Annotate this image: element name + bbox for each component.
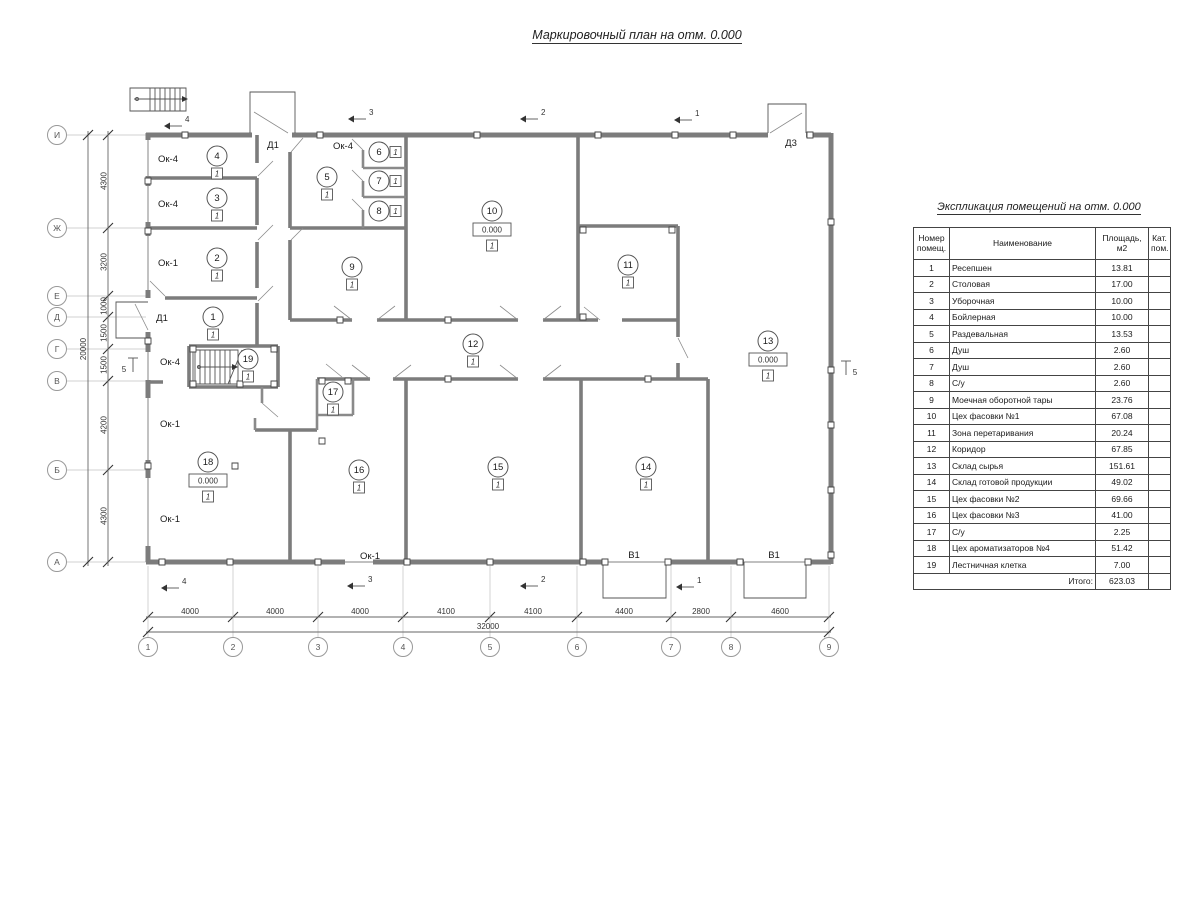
svg-text:9: 9: [827, 642, 832, 652]
svg-text:4: 4: [401, 642, 406, 652]
room-label-8: 81: [369, 201, 401, 221]
table-row: 1Ресепшен13.81: [914, 260, 1171, 277]
svg-text:4: 4: [182, 577, 187, 586]
door-label: В1: [768, 550, 780, 561]
dim-left: 3200: [100, 253, 109, 271]
table-row: 9Моечная оборотной тары23.76: [914, 392, 1171, 409]
axis-col-4: 4: [394, 638, 413, 657]
col-header: Наименование: [950, 228, 1096, 260]
svg-text:1: 1: [393, 177, 397, 186]
col-header: Кат. пом.: [1149, 228, 1171, 260]
table-row: 4Бойлерная10.00: [914, 309, 1171, 326]
room-label-11: 111: [618, 255, 638, 288]
svg-text:7: 7: [376, 176, 381, 187]
svg-text:4: 4: [214, 151, 219, 162]
svg-text:Г: Г: [55, 344, 60, 354]
svg-text:1: 1: [496, 481, 500, 490]
room-label-10: 100.0001: [473, 201, 511, 251]
section-mark-4: 4: [164, 115, 190, 130]
dim-left: 1000: [100, 297, 109, 315]
schedule-header: Номер помещ.НаименованиеПлощадь, м2Кат. …: [914, 228, 1171, 260]
svg-text:1: 1: [393, 148, 397, 157]
dim-left: 1500: [100, 356, 109, 374]
room-label-1: 11: [203, 307, 223, 340]
svg-text:1: 1: [766, 372, 770, 381]
dim-left: 4300: [100, 172, 109, 190]
door-label: Д1: [156, 313, 168, 324]
window-label: Ок-1: [160, 419, 180, 430]
internal-stair: [193, 350, 242, 384]
window-label: Ок-4: [333, 141, 353, 152]
axis-row-В: В: [48, 372, 67, 391]
table-row: 7Душ2.60: [914, 359, 1171, 376]
svg-text:1: 1: [644, 481, 648, 490]
dim-left: 4200: [100, 416, 109, 434]
room-label-2: 21: [207, 248, 227, 281]
room-label-5: 51: [317, 167, 337, 200]
section-mark-1: 1: [676, 576, 702, 591]
table-row: 2Столовая17.00: [914, 276, 1171, 293]
room-labels: 112131415161718191100.0001111121130.0001…: [189, 142, 787, 502]
door-label: Д1: [267, 140, 279, 151]
svg-text:3: 3: [369, 108, 374, 117]
svg-text:6: 6: [575, 642, 580, 652]
svg-text:14: 14: [641, 462, 652, 473]
axis-col-1: 1: [139, 638, 158, 657]
table-row: 17С/у2.25: [914, 524, 1171, 541]
svg-text:13: 13: [763, 336, 774, 347]
section-mark-1: 1: [674, 109, 700, 124]
axis-col-7: 7: [662, 638, 681, 657]
table-row: 18Цех ароматизаторов №451.42: [914, 540, 1171, 557]
svg-text:18: 18: [203, 457, 214, 468]
svg-text:И: И: [54, 130, 60, 140]
svg-text:Б: Б: [54, 465, 60, 475]
svg-text:11: 11: [623, 260, 633, 271]
svg-text:Ж: Ж: [53, 223, 61, 233]
plan-title: Маркировочный план на отм. 0.000: [437, 26, 837, 44]
axis-row-Д: Д: [48, 308, 67, 327]
svg-text:1: 1: [357, 484, 361, 493]
svg-text:10: 10: [487, 206, 498, 217]
svg-text:1: 1: [350, 281, 354, 290]
axis-row-Ж: Ж: [48, 219, 67, 238]
room-label-18: 180.0001: [189, 452, 227, 502]
axis-col-9: 9: [820, 638, 839, 657]
svg-text:15: 15: [493, 462, 504, 473]
axis-row-Б: Б: [48, 461, 67, 480]
window-label: Ок-1: [160, 514, 180, 525]
section-mark-3: 3: [348, 108, 374, 123]
window-label: Ок-4: [158, 199, 178, 210]
schedule-body: 1Ресепшен13.812Столовая17.003Уборочная10…: [914, 260, 1171, 590]
col-header: Площадь, м2: [1096, 228, 1149, 260]
schedule-title: Экспликация помещений на отм. 0.000: [908, 197, 1170, 215]
svg-text:5: 5: [853, 368, 858, 377]
total-value: 623.03: [1096, 573, 1149, 590]
table-row: 16Цех фасовки №341.00: [914, 507, 1171, 524]
svg-text:12: 12: [468, 339, 479, 350]
window-label: Ок-4: [160, 357, 180, 368]
svg-text:3: 3: [368, 575, 373, 584]
room-label-13: 130.0001: [749, 331, 787, 381]
table-row: 10Цех фасовки №167.08: [914, 408, 1171, 425]
svg-text:0.000: 0.000: [482, 226, 503, 235]
section-mark-2: 2: [520, 575, 546, 590]
wall-markers: [145, 132, 834, 565]
plan-title-text: Маркировочный план на отм. 0.000: [532, 28, 741, 44]
svg-text:3: 3: [316, 642, 321, 652]
svg-text:1: 1: [215, 212, 219, 221]
svg-text:1: 1: [697, 576, 702, 585]
svg-text:7: 7: [669, 642, 674, 652]
dim-bottom: 4000: [266, 607, 284, 616]
room-label-3: 31: [207, 188, 227, 221]
svg-text:5: 5: [488, 642, 493, 652]
room-label-17: 171: [323, 382, 343, 415]
room-label-16: 161: [349, 460, 369, 493]
room-label-12: 121: [463, 334, 483, 367]
window-label: Ок-1: [158, 258, 178, 269]
svg-text:1: 1: [215, 170, 219, 179]
dim-bottom: 2800: [692, 607, 710, 616]
dim-bottom-total: 32000: [477, 622, 500, 631]
section-mark-4: 4: [161, 577, 187, 592]
svg-text:1: 1: [490, 242, 494, 251]
axis-col-3: 3: [309, 638, 328, 657]
section-mark-3: 3: [347, 575, 373, 590]
section-mark-5: 5: [841, 361, 858, 377]
svg-text:5: 5: [324, 172, 329, 183]
svg-text:2: 2: [541, 575, 546, 584]
door-label: В1: [628, 550, 640, 561]
svg-text:0.000: 0.000: [758, 356, 779, 365]
svg-text:1: 1: [146, 642, 151, 652]
table-row: 12Коридор67.85: [914, 441, 1171, 458]
table-row: 8С/у2.60: [914, 375, 1171, 392]
dim-left: 4300: [100, 507, 109, 525]
interior-walls: [148, 135, 708, 562]
svg-text:3: 3: [214, 193, 219, 204]
room-schedule-table: Номер помещ.НаименованиеПлощадь, м2Кат. …: [913, 227, 1171, 590]
dim-bottom: 4400: [615, 607, 633, 616]
room-label-19: 191: [238, 349, 258, 382]
table-row: 14Склад готовой продукции49.02: [914, 474, 1171, 491]
door-label: Д3: [785, 138, 797, 149]
svg-text:1: 1: [393, 207, 397, 216]
dim-left: 1500: [100, 324, 109, 342]
svg-text:9: 9: [349, 262, 354, 273]
section-mark-2: 2: [520, 108, 546, 123]
dim-left-total: 20000: [79, 337, 88, 360]
svg-text:1: 1: [246, 373, 250, 382]
svg-text:0.000: 0.000: [198, 477, 219, 486]
svg-text:1: 1: [206, 493, 210, 502]
svg-text:Д: Д: [54, 312, 60, 322]
svg-text:1: 1: [695, 109, 700, 118]
room-label-4: 41: [207, 146, 227, 179]
table-row: 13Склад сырья151.61: [914, 458, 1171, 475]
svg-text:19: 19: [243, 354, 254, 365]
door-leaves: [135, 112, 802, 417]
svg-text:2: 2: [214, 253, 219, 264]
total-row: Итого:623.03: [914, 573, 1171, 590]
axis-row-Г: Г: [48, 340, 67, 359]
window-label: Ок-4: [158, 154, 178, 165]
svg-text:16: 16: [354, 465, 365, 476]
svg-text:А: А: [54, 557, 60, 567]
svg-text:1: 1: [331, 406, 335, 415]
svg-text:В: В: [54, 376, 60, 386]
section-mark-5: 5: [122, 358, 138, 374]
room-schedule: Номер помещ.НаименованиеПлощадь, м2Кат. …: [913, 227, 1171, 590]
dim-bottom: 4000: [351, 607, 369, 616]
room-label-15: 151: [488, 457, 508, 490]
svg-text:1: 1: [325, 191, 329, 200]
axis-col-5: 5: [481, 638, 500, 657]
schedule-title-text: Экспликация помещений на отм. 0.000: [937, 201, 1140, 215]
svg-text:1: 1: [215, 272, 219, 281]
table-row: 6Душ2.60: [914, 342, 1171, 359]
dim-bottom: 4100: [437, 607, 455, 616]
svg-text:6: 6: [376, 147, 381, 158]
svg-text:1: 1: [471, 358, 475, 367]
svg-text:2: 2: [541, 108, 546, 117]
axis-row-И: И: [48, 126, 67, 145]
axis-row-А: А: [48, 553, 67, 572]
dim-bottom: 4100: [524, 607, 542, 616]
table-row: 15Цех фасовки №269.66: [914, 491, 1171, 508]
room-label-6: 61: [369, 142, 401, 162]
table-row: 19Лестничная клетка7.00: [914, 557, 1171, 574]
svg-text:1: 1: [210, 312, 215, 323]
dim-bottom: 4600: [771, 607, 789, 616]
col-header: Номер помещ.: [914, 228, 950, 260]
svg-text:4: 4: [185, 115, 190, 124]
table-row: 5Раздевальная13.53: [914, 326, 1171, 343]
total-label: Итого:: [914, 573, 1096, 590]
svg-text:17: 17: [328, 387, 339, 398]
axis-row-Е: Е: [48, 287, 67, 306]
svg-text:1: 1: [626, 279, 630, 288]
table-row: 11Зона перетаривания20.24: [914, 425, 1171, 442]
svg-text:2: 2: [231, 642, 236, 652]
dim-bottom: 4000: [181, 607, 199, 616]
axis-col-8: 8: [722, 638, 741, 657]
svg-text:5: 5: [122, 365, 127, 374]
svg-text:8: 8: [376, 206, 381, 217]
table-row: 3Уборочная10.00: [914, 293, 1171, 310]
external-stair: [130, 88, 188, 111]
svg-text:Е: Е: [54, 291, 60, 301]
room-label-14: 141: [636, 457, 656, 490]
window-label: Ок-1: [360, 551, 380, 562]
room-label-9: 91: [342, 257, 362, 290]
axis-col-2: 2: [224, 638, 243, 657]
svg-text:8: 8: [729, 642, 734, 652]
axis-col-6: 6: [568, 638, 587, 657]
room-label-7: 71: [369, 171, 401, 191]
outer-walls: [146, 133, 831, 564]
svg-text:1: 1: [211, 331, 215, 340]
